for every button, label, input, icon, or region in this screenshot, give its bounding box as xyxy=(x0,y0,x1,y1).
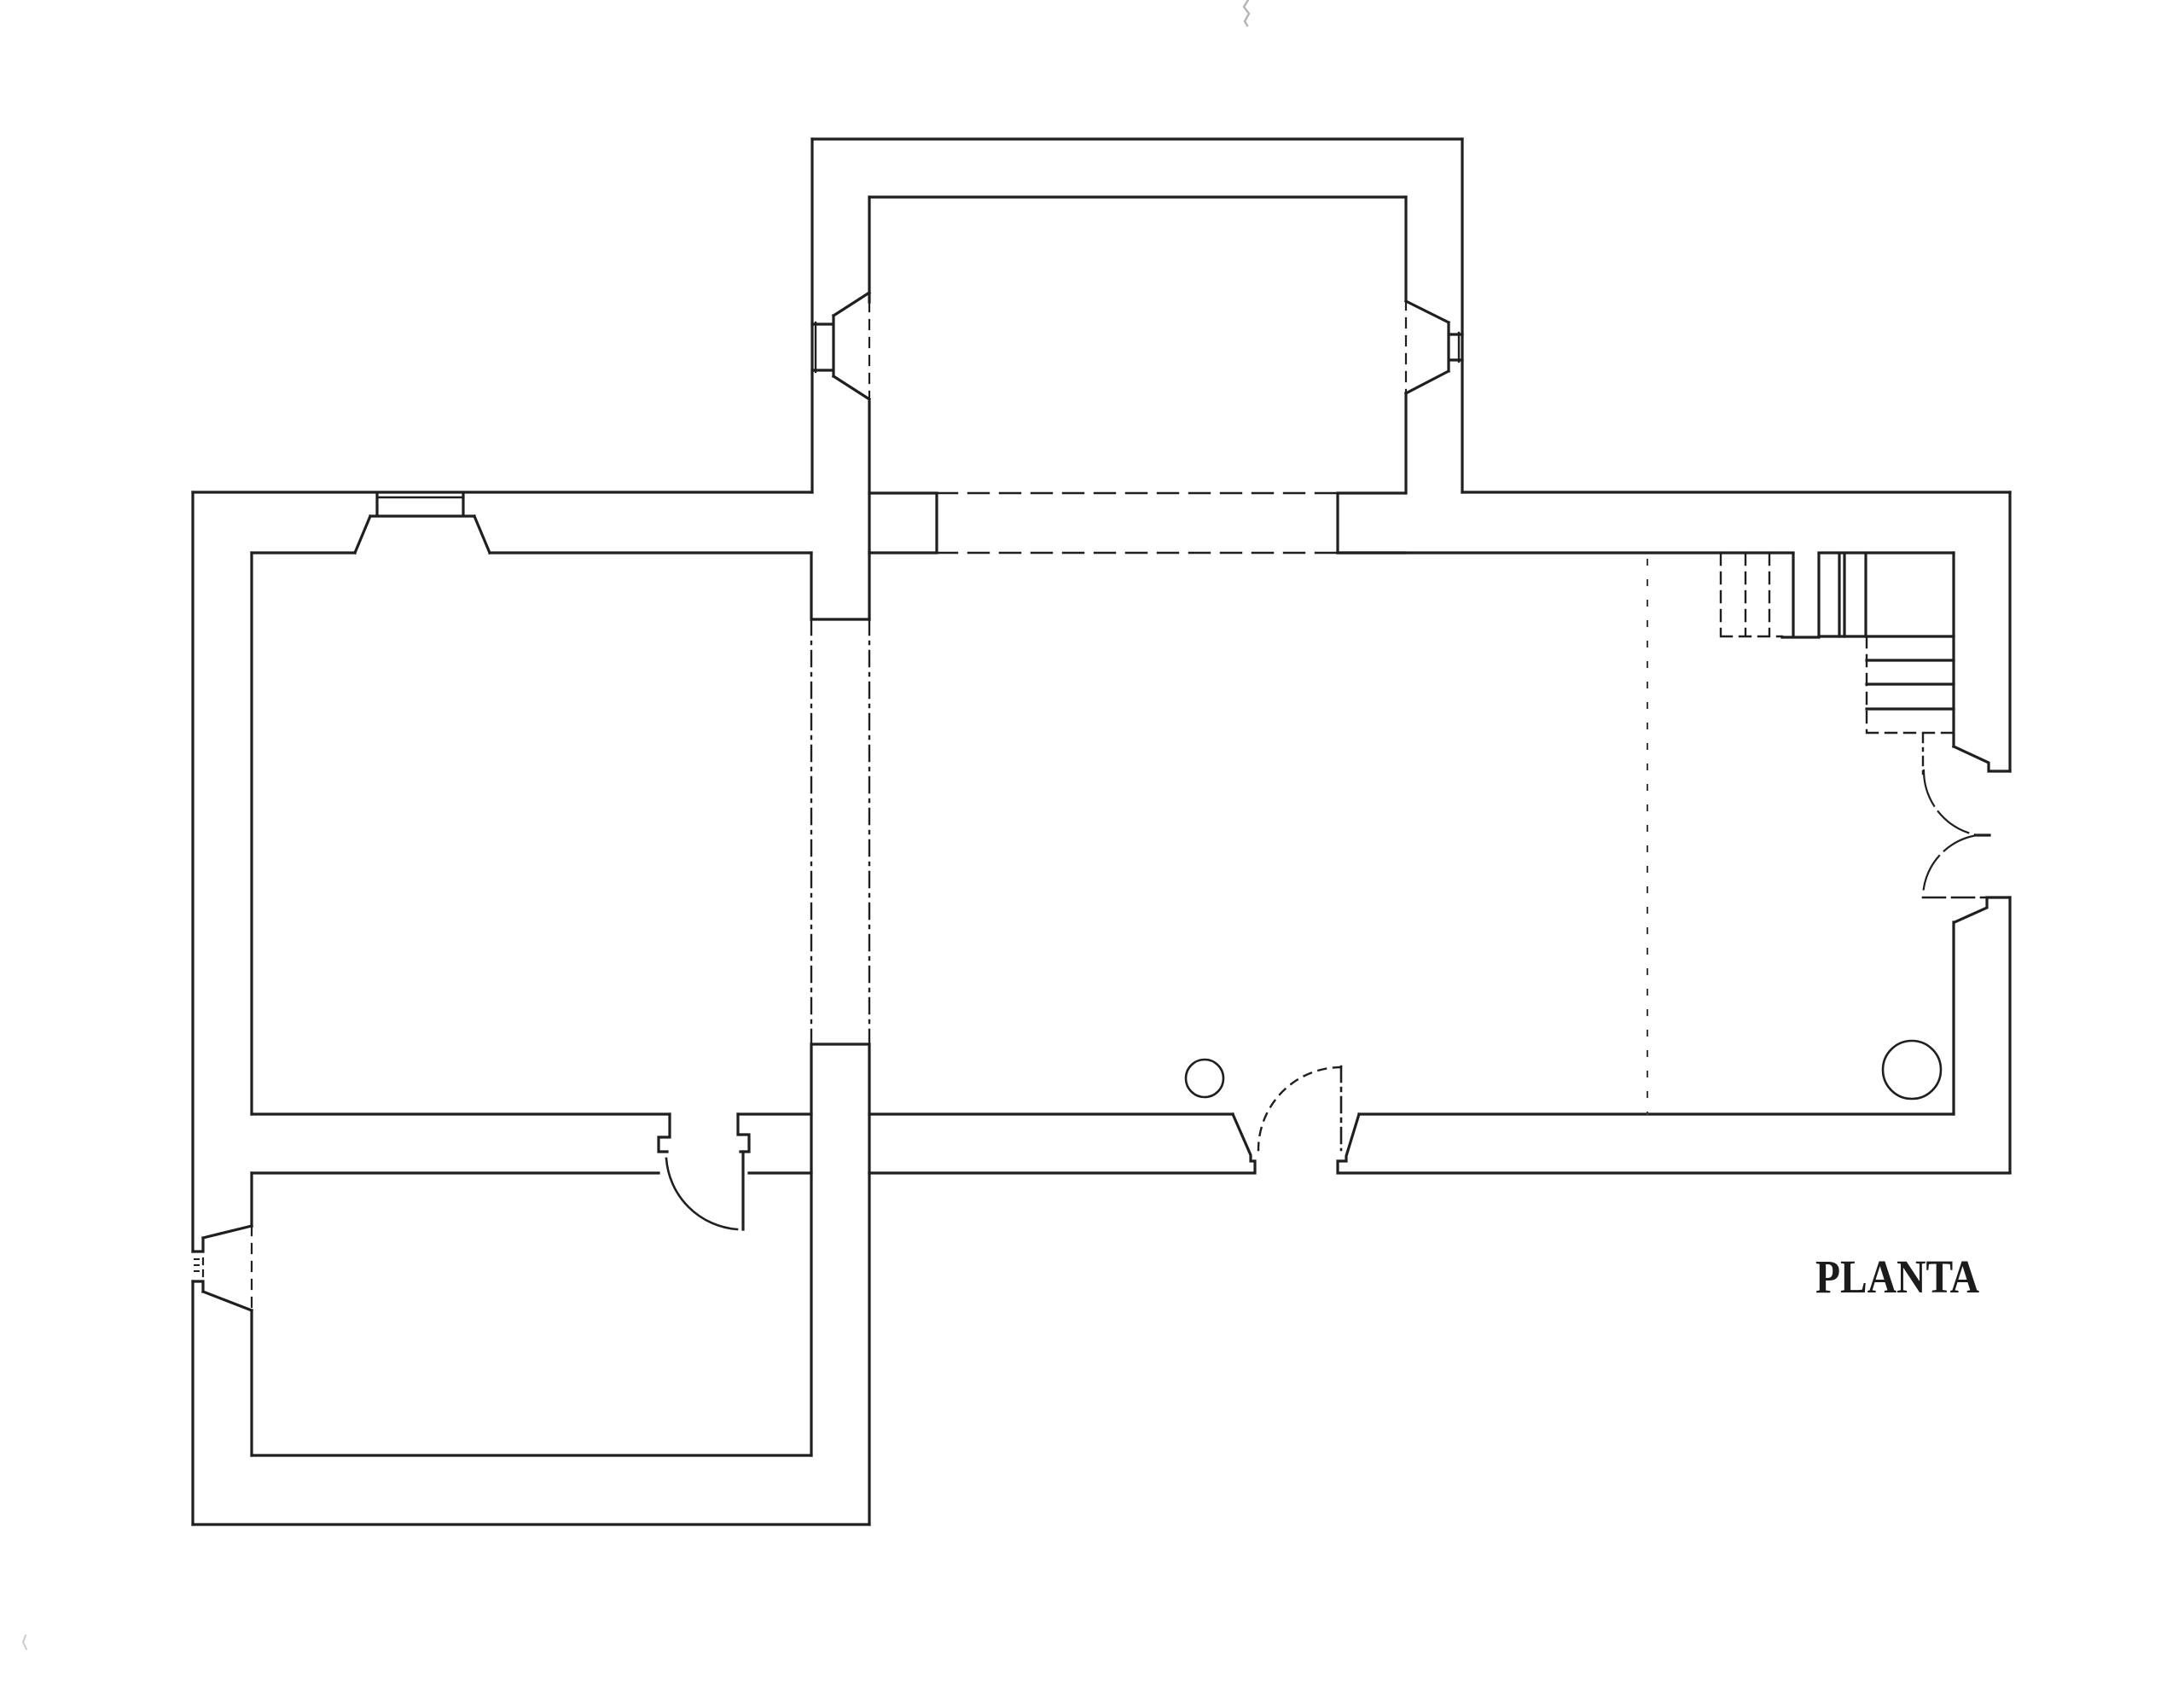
svg-text:PLANTA: PLANTA xyxy=(1815,1251,1979,1303)
